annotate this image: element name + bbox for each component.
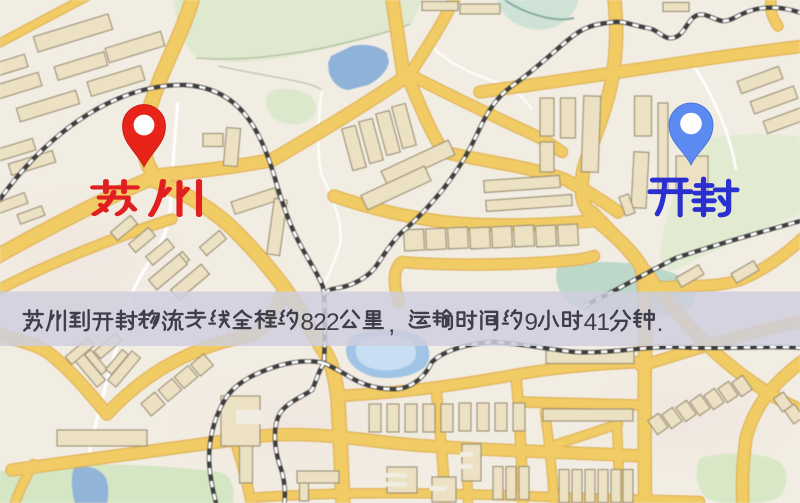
svg-text:.: . (657, 310, 664, 337)
svg-text:,: , (388, 310, 395, 338)
svg-text:8: 8 (300, 309, 314, 336)
svg-text:4: 4 (584, 309, 598, 336)
svg-text:9: 9 (524, 309, 538, 336)
svg-text:2: 2 (326, 309, 340, 336)
svg-text:1: 1 (596, 309, 610, 336)
svg-text:2: 2 (313, 309, 327, 336)
